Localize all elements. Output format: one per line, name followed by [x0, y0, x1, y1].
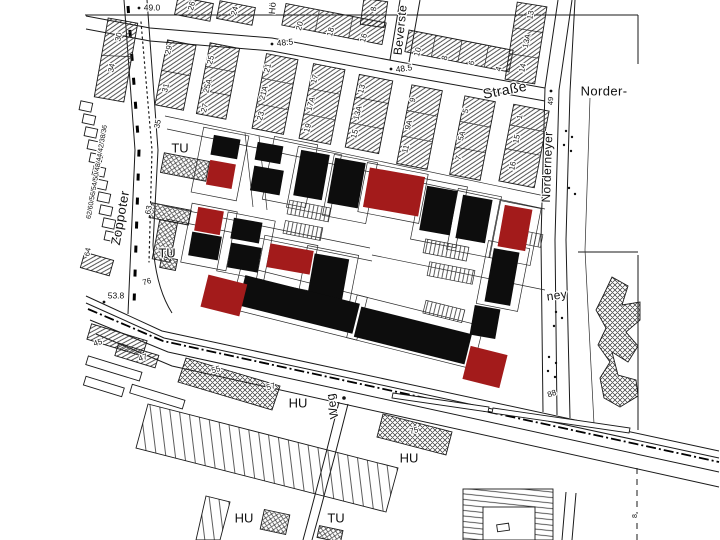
- elevation-dot: [103, 301, 106, 304]
- elevation-dot: [138, 7, 141, 10]
- street-label-partial: Hö: [267, 1, 278, 14]
- small-house: [84, 127, 98, 138]
- elevation-dot: [550, 90, 553, 93]
- elevation-label: 49: [546, 97, 555, 106]
- street-label-norder: Norder-: [581, 83, 628, 98]
- use-label-hu-1: HU: [289, 395, 308, 410]
- use-label-hu-2: HU: [400, 450, 419, 465]
- city-map: ZoppoterBeversteStraßeNorder-Norderneyer…: [0, 0, 720, 540]
- boundary-number: 8: [632, 514, 639, 518]
- elevation-dot: [271, 43, 274, 46]
- house-number: 64: [82, 247, 92, 257]
- building-red: [206, 160, 236, 189]
- building-black: [470, 305, 501, 339]
- small-house: [79, 101, 93, 112]
- elevation-label: 49.0: [144, 2, 161, 12]
- elevation-dot: [390, 68, 393, 71]
- use-label-tu-3: TU: [327, 510, 344, 525]
- junction-dot: [342, 396, 346, 400]
- building-8: [360, 0, 387, 28]
- building-red: [194, 207, 224, 235]
- small-house: [82, 114, 96, 125]
- use-label-hu-3: HU: [235, 510, 254, 525]
- building-black: [188, 232, 222, 261]
- street-label-ney: ney: [546, 287, 568, 304]
- use-label-tu-1: TU: [171, 140, 188, 155]
- street-label-norderneyer: Norderneyer: [539, 131, 555, 203]
- elevation-label: 53.8: [108, 290, 125, 300]
- building-black: [250, 166, 284, 196]
- map-canvas: ZoppoterBeversteStraßeNorder-Norderneyer…: [0, 0, 720, 540]
- small-house: [97, 192, 111, 203]
- building-black: [227, 243, 262, 273]
- elevation-label: 48.5: [276, 36, 294, 48]
- school-building: [463, 489, 553, 540]
- use-label-tu-2: TU: [158, 245, 175, 260]
- small-house: [99, 205, 113, 216]
